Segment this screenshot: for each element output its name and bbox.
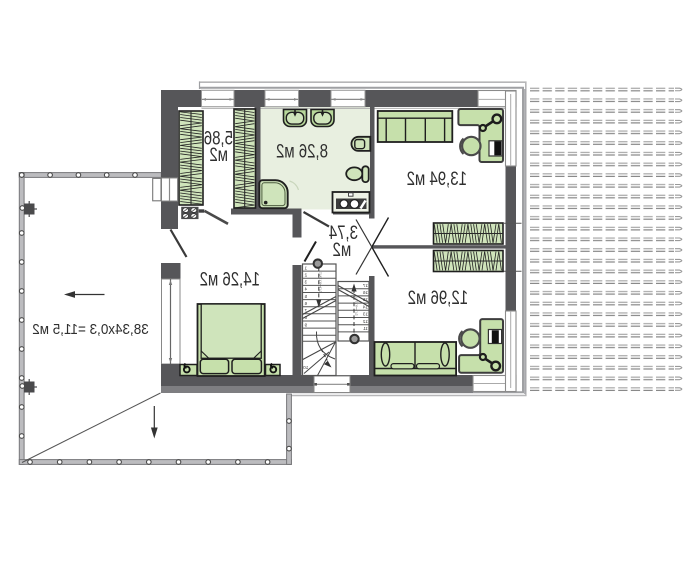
svg-text:9: 9 bbox=[304, 322, 307, 327]
svg-text:5: 5 bbox=[304, 294, 307, 299]
svg-text:4: 4 bbox=[304, 287, 307, 292]
svg-text:12: 12 bbox=[363, 319, 369, 324]
svg-text:17x17,6=4,72: 17x17,6=4,72 bbox=[319, 272, 322, 293]
svg-text:11: 11 bbox=[363, 326, 368, 331]
svg-text:16: 16 bbox=[363, 290, 369, 295]
svg-text:14,26 м2: 14,26 м2 bbox=[200, 267, 260, 289]
svg-text:1: 1 bbox=[304, 265, 307, 270]
svg-text:13,94 м2: 13,94 м2 bbox=[407, 167, 467, 189]
svg-text:13: 13 bbox=[363, 312, 369, 317]
svg-text:12,96 м2: 12,96 м2 bbox=[408, 286, 468, 308]
svg-text:8,26 м2: 8,26 м2 bbox=[276, 140, 328, 162]
svg-text:2: 2 bbox=[304, 272, 307, 277]
svg-text:38,34x0,3 =11,5 м2: 38,34x0,3 =11,5 м2 bbox=[32, 321, 149, 338]
svg-text:17x17,6=4,72: 17x17,6=4,72 bbox=[355, 295, 358, 316]
svg-text:м2: м2 bbox=[333, 238, 352, 260]
svg-text:м2: м2 bbox=[209, 143, 228, 165]
svg-text:10: 10 bbox=[303, 365, 309, 370]
svg-text:17: 17 bbox=[363, 283, 369, 288]
svg-text:6: 6 bbox=[304, 301, 307, 306]
svg-text:3: 3 bbox=[304, 280, 307, 285]
